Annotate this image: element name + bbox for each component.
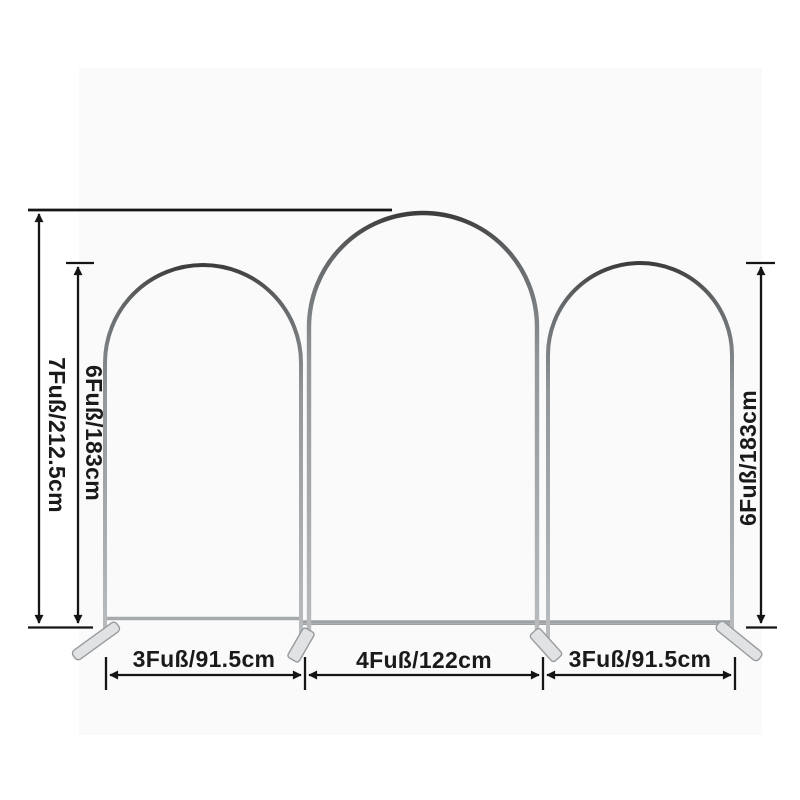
label-total-height: 7Fuß/212.5cm: [44, 357, 70, 513]
label-middle-arch-width: 4Fuß/122cm: [356, 647, 492, 673]
diagram-canvas: 7Fuß/212.5cm 6Fuß/183cm 6Fuß/183cm 3Fuß/…: [0, 0, 800, 800]
arch-stand-dimension-diagram: 7Fuß/212.5cm 6Fuß/183cm 6Fuß/183cm 3Fuß/…: [0, 0, 800, 800]
label-right-arch-height: 6Fuß/183cm: [735, 390, 761, 526]
photo-background: [79, 68, 762, 735]
label-right-arch-width: 3Fuß/91.5cm: [569, 646, 712, 672]
label-left-arch-width: 3Fuß/91.5cm: [133, 646, 276, 672]
label-left-arch-height: 6Fuß/183cm: [81, 365, 107, 501]
